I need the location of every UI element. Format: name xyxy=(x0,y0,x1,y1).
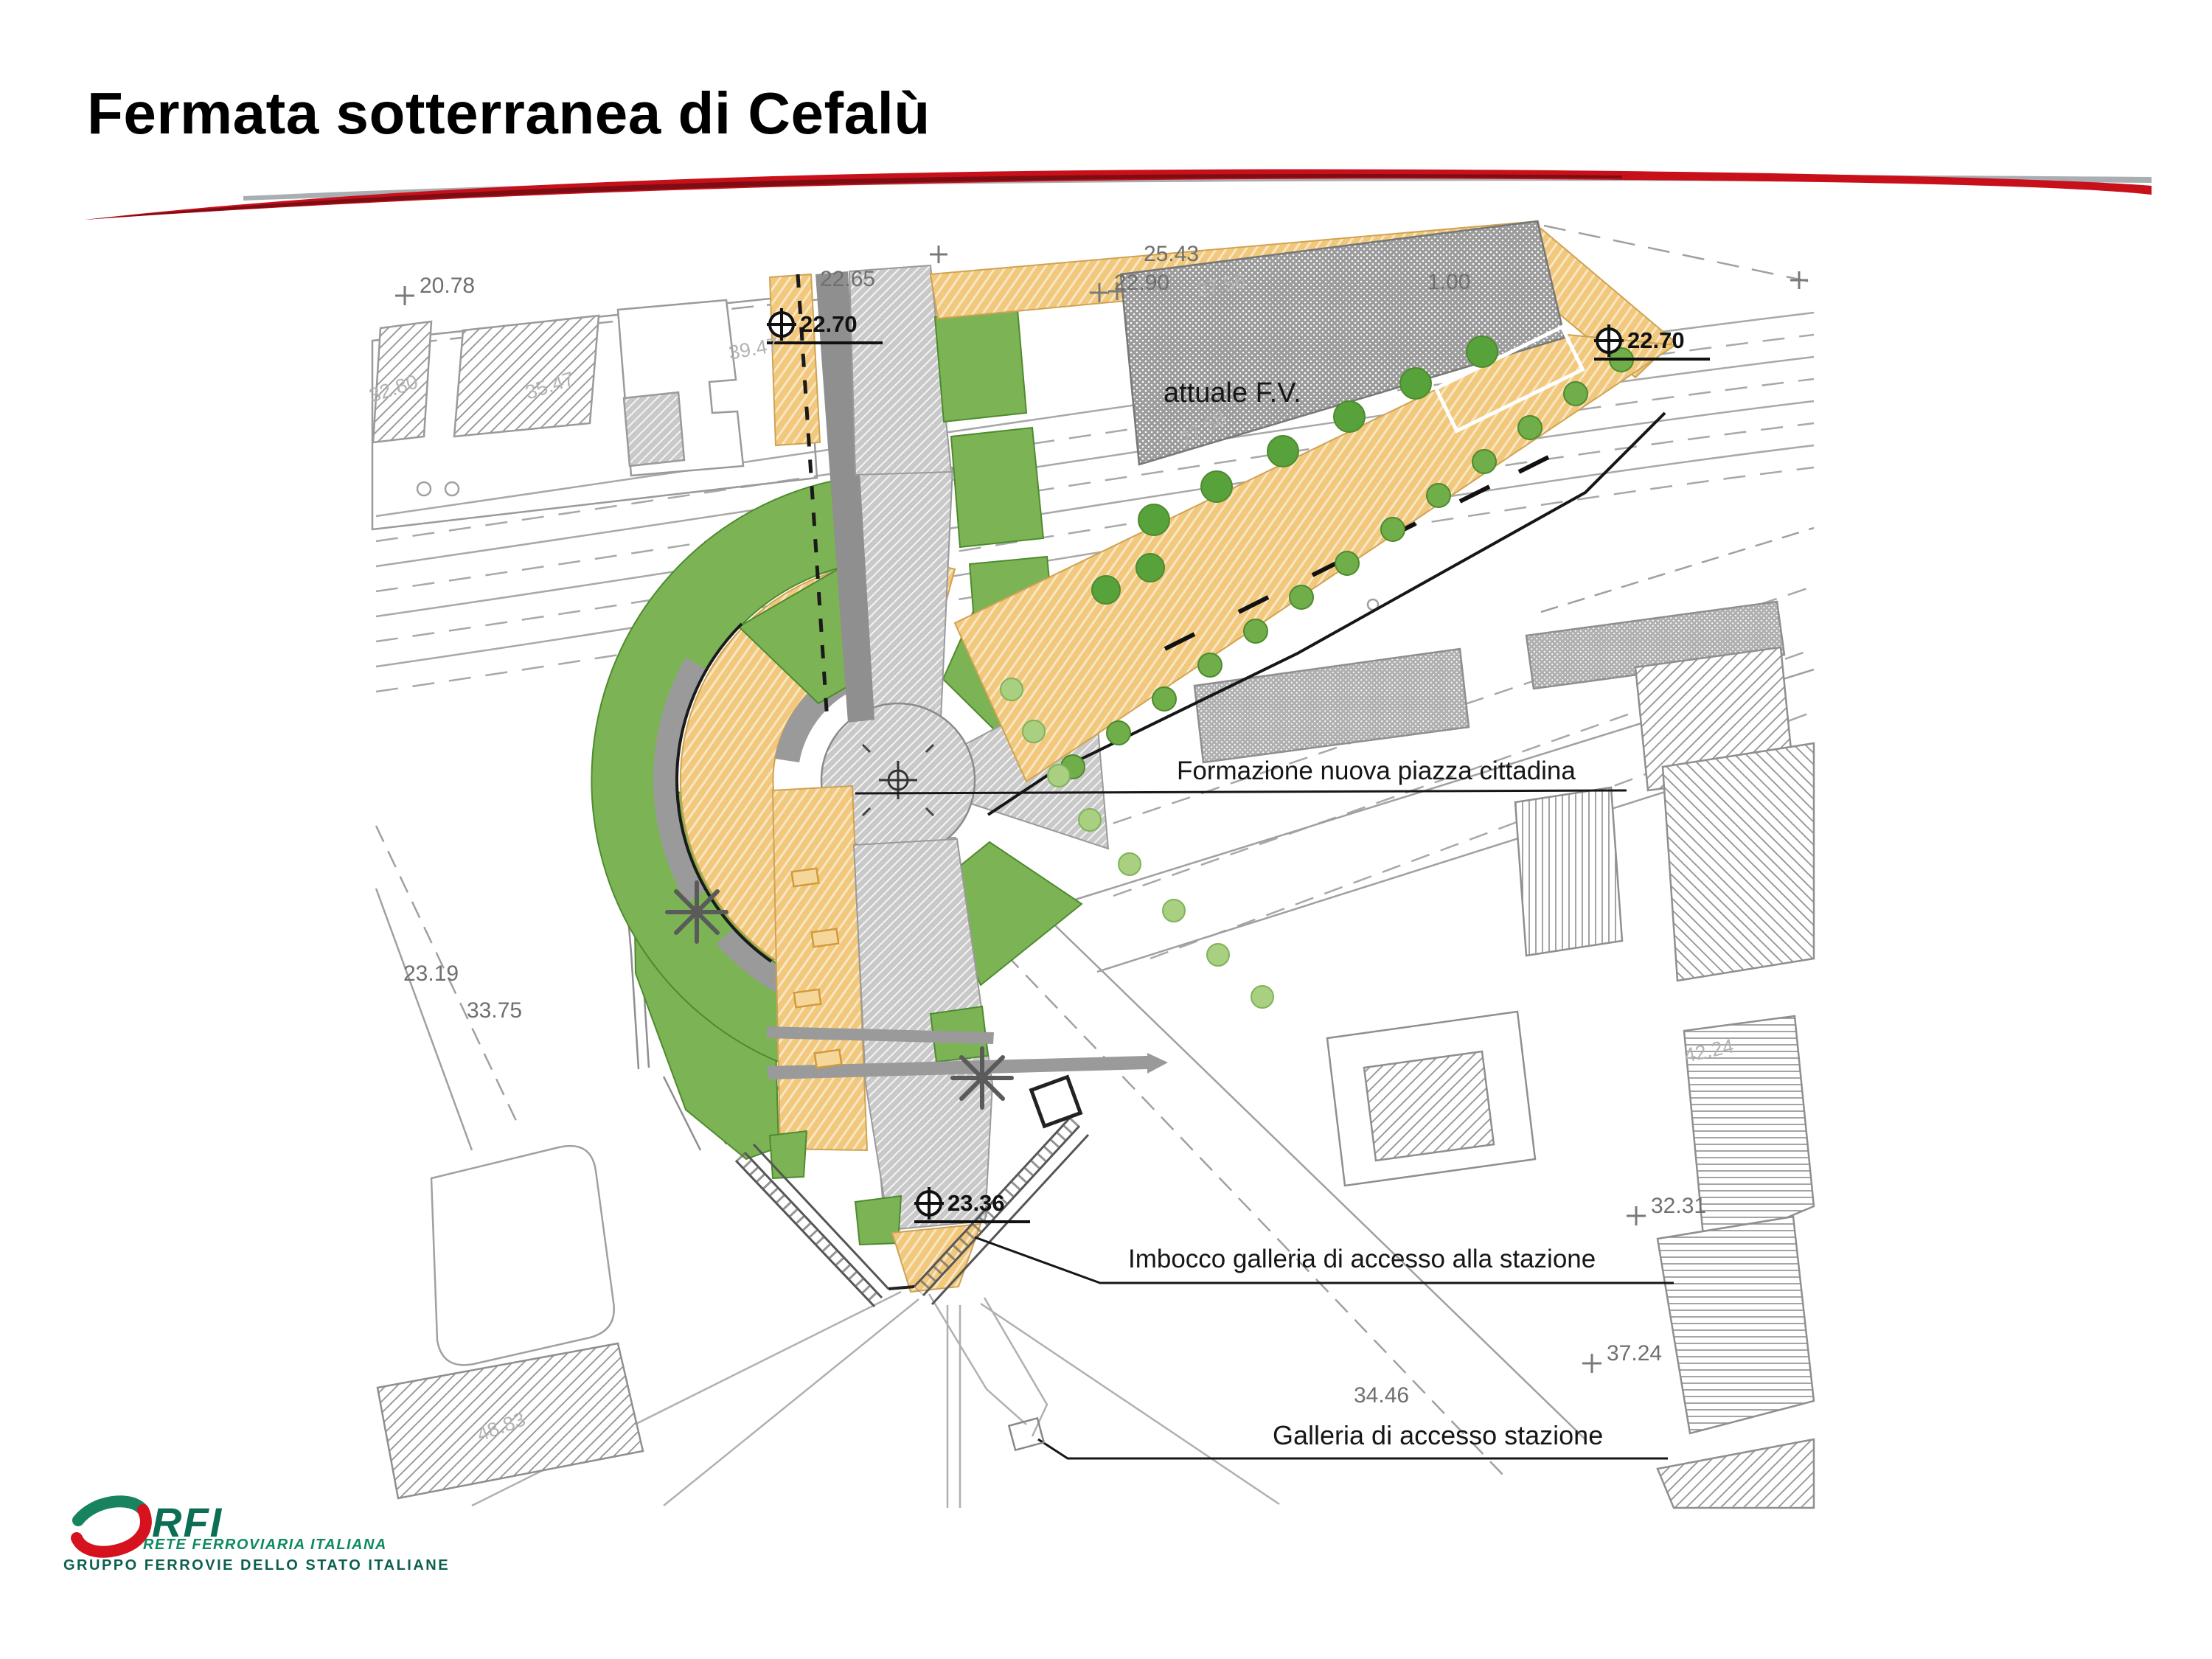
elevation-marker: 22.70 xyxy=(1594,327,1710,361)
label-galleria-accesso: Galleria di accesso stazione xyxy=(1273,1420,1603,1451)
elevation-value: 22.70 xyxy=(1627,327,1685,354)
elevation-value: 22.65 xyxy=(820,267,875,292)
buildings-upper-left xyxy=(372,295,817,529)
elevation-value: 20.78 xyxy=(420,274,475,299)
elevation-value: 23.36 xyxy=(947,1190,1005,1217)
elevation-marker: 37.24 xyxy=(1582,1335,1662,1373)
elevation-value: 25.43 xyxy=(1144,242,1199,267)
rfi-logo: RFI RETE FERROVIARIA ITALIANA GRUPPO FER… xyxy=(65,1488,478,1591)
elevation-value: 23.19 xyxy=(403,961,459,987)
elevation-marker: 23.19 xyxy=(398,961,459,987)
elevation-value: 37.24 xyxy=(1607,1341,1662,1366)
elevation-value: 22.70 xyxy=(800,311,858,338)
benchmark-icon xyxy=(916,1190,942,1217)
elevation-marker: 22.70 xyxy=(767,311,883,344)
site-plan-drawing xyxy=(0,0,2212,1659)
plus-icon xyxy=(1627,1206,1646,1225)
elevation-marker: 22.90 xyxy=(1090,264,1169,302)
plus-icon xyxy=(1582,1354,1601,1373)
elevation-marker: 33.75 xyxy=(462,998,522,1023)
elevation-marker: 1.00 xyxy=(1427,270,1470,295)
label-formazione-piazza: Formazione nuova piazza cittadina xyxy=(1177,757,1576,786)
title-swoosh xyxy=(85,169,2152,220)
label-attuale-fv: attuale F.V. xyxy=(1164,378,1301,409)
plus-icon xyxy=(1090,283,1109,302)
benchmark-icon xyxy=(1596,327,1622,354)
plus-icon xyxy=(395,286,414,305)
logo-group: GRUPPO FERROVIE DELLO STATO ITALIANE xyxy=(63,1557,450,1574)
slide: Fermata sotterranea di Cefalù xyxy=(0,0,2212,1659)
logo-tagline: RETE FERROVIARIA ITALIANA xyxy=(143,1537,387,1554)
elevation-marker: 23.36 xyxy=(914,1190,1030,1223)
elevation-marker: 20.78 xyxy=(395,267,475,305)
elevation-marker: 34.46 xyxy=(1354,1383,1409,1408)
elevation-value: 32.31 xyxy=(1651,1194,1706,1219)
elevation-marker: 22.65 xyxy=(820,267,875,292)
label-imbocco-galleria: Imbocco galleria di accesso alla stazion… xyxy=(1128,1245,1596,1274)
elevation-marker: 25.43 xyxy=(1138,242,1199,267)
elevation-value: 1.00 xyxy=(1427,270,1470,295)
elevation-value: 22.90 xyxy=(1114,271,1169,296)
elevation-marker: 32.31 xyxy=(1627,1187,1706,1225)
elevation-value: 34.46 xyxy=(1354,1383,1409,1408)
elevation-value: 33.75 xyxy=(467,998,522,1023)
